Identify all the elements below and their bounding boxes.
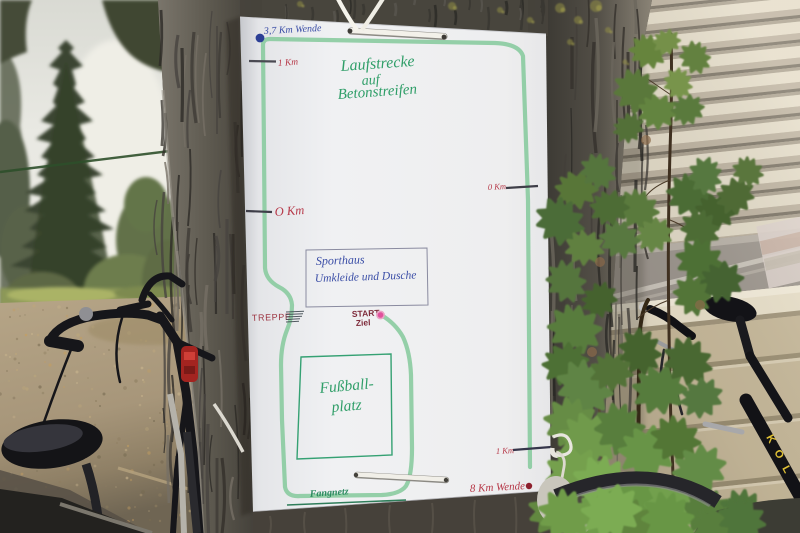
svg-text:1 Km: 1 Km: [278, 58, 299, 69]
svg-text:Ziel: Ziel: [356, 317, 371, 328]
svg-text:Sporthaus: Sporthaus: [316, 252, 365, 268]
svg-text:1 Km: 1 Km: [496, 445, 515, 456]
svg-text:0 Km: 0 Km: [488, 181, 507, 192]
svg-text:TREPPE: TREPPE: [252, 312, 292, 323]
svg-text:platz: platz: [330, 396, 363, 416]
svg-text:O Km: O Km: [274, 203, 304, 219]
